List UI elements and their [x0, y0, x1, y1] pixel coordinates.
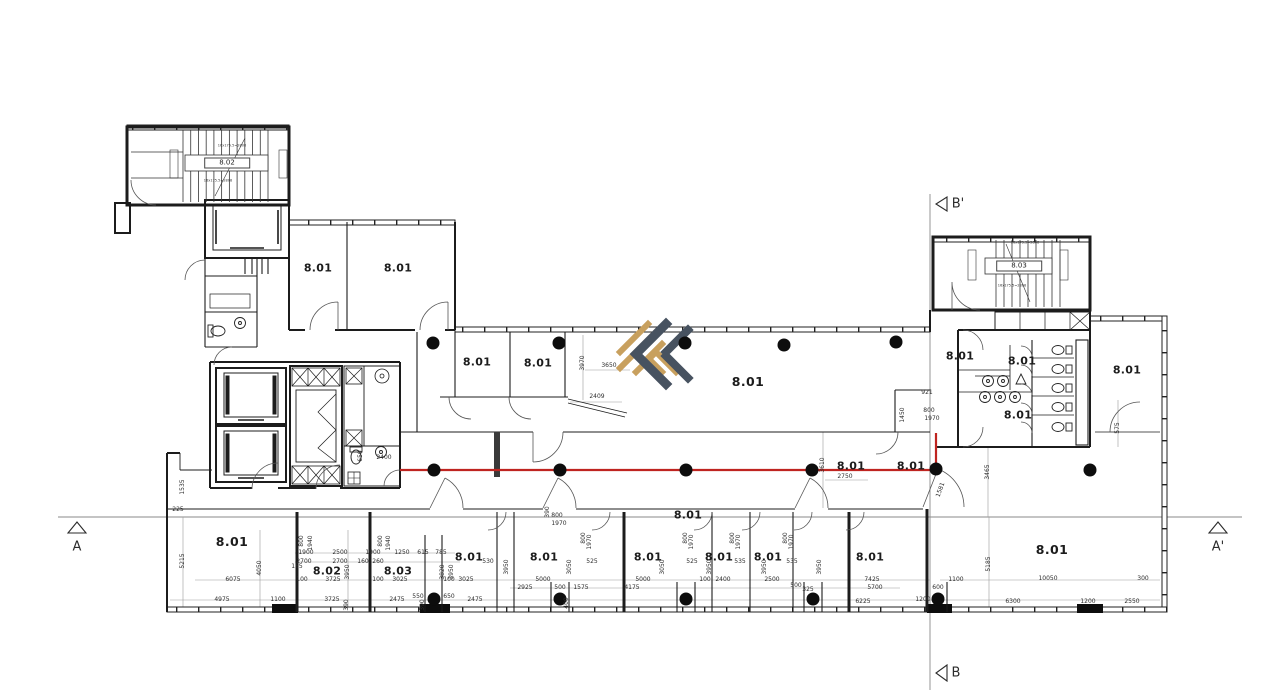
section-lines	[58, 194, 1242, 690]
column-dot	[428, 464, 441, 477]
column-dot	[680, 464, 693, 477]
column-dot	[807, 593, 820, 606]
sink-icon	[235, 318, 246, 329]
column-dot	[427, 337, 440, 350]
shower-symbol	[1016, 374, 1026, 384]
floor-plan: 8.018.018.018.018.018.018.018.018.018.01…	[0, 0, 1280, 698]
section-b-triangle	[936, 665, 947, 681]
main-walls	[167, 200, 1090, 612]
column-dot	[1084, 464, 1097, 477]
column-dot	[778, 339, 791, 352]
washbasins	[980, 376, 1021, 403]
column-dot	[890, 336, 903, 349]
column-dot	[553, 337, 566, 350]
column-dot	[680, 593, 693, 606]
column-dot	[930, 463, 943, 476]
stairwells	[131, 130, 1068, 307]
column-dot	[679, 337, 692, 350]
column-dot	[428, 593, 441, 606]
wc-stall-toilets	[1052, 346, 1072, 432]
interior-walls	[167, 222, 1160, 612]
section-a2-triangle	[1209, 522, 1227, 533]
route-line	[400, 433, 936, 470]
floor-plan-drawing	[0, 0, 1280, 698]
fixtures	[208, 318, 1072, 465]
brand-logo	[620, 324, 688, 384]
column-dot	[806, 464, 819, 477]
section-a-triangle	[68, 522, 86, 533]
sink-icon	[376, 447, 387, 458]
column-dot	[554, 464, 567, 477]
column-dot	[554, 593, 567, 606]
section-b2-triangle	[936, 197, 947, 211]
column-dot	[932, 593, 945, 606]
dimension-lines	[170, 335, 1160, 612]
